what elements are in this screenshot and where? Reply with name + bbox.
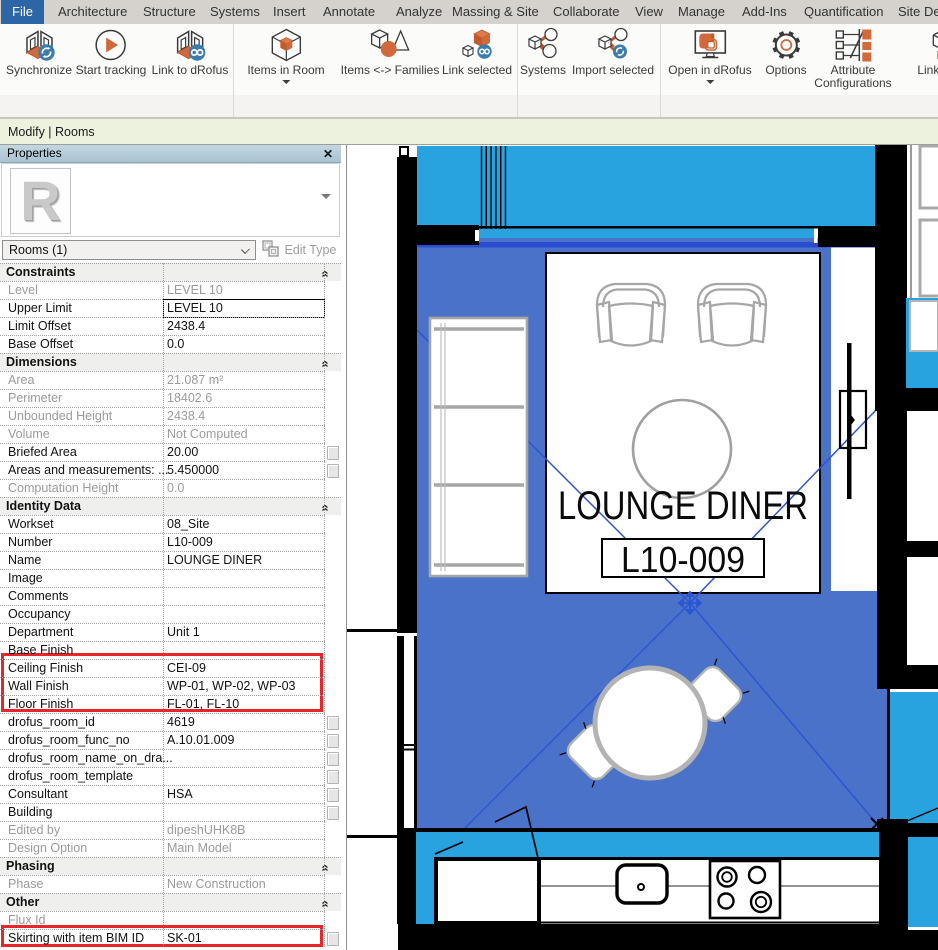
svg-text:LOUNGE DINER: LOUNGE DINER — [558, 484, 808, 528]
svg-text:L10-009: L10-009 — [621, 539, 745, 580]
